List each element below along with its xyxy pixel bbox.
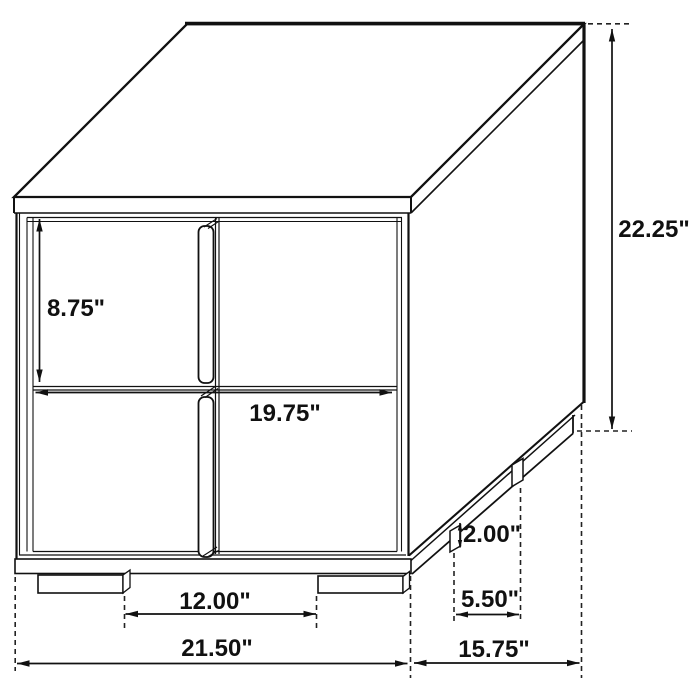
top-panel <box>14 24 585 403</box>
side-panel <box>409 213 584 574</box>
side-leg-spacing-label: 5.50" <box>461 586 519 613</box>
nightstand-dimension-diagram: 8.75" 19.75" 22.25" 2.00" 5.50" 12.00" 2… <box>0 0 700 700</box>
leg-height-label: 2.00" <box>463 521 521 548</box>
lower-drawer-handle <box>199 397 214 557</box>
upper-drawer-handle <box>199 226 214 383</box>
plinth <box>15 559 411 574</box>
front-leg-spacing-label: 12.00" <box>179 588 250 615</box>
overall-width-label: 21.50" <box>181 635 252 662</box>
overall-height-label: 22.25" <box>618 216 689 243</box>
diagram-canvas: 8.75" 19.75" 22.25" 2.00" 5.50" 12.00" 2… <box>0 0 700 700</box>
dimension-lines <box>17 29 615 667</box>
drawer-height-label: 8.75" <box>47 295 105 322</box>
drawer-width-label: 19.75" <box>249 400 320 427</box>
front-right-foot <box>318 572 410 594</box>
overall-depth-label: 15.75" <box>458 636 529 663</box>
dimension-labels: 8.75" 19.75" 22.25" 2.00" 5.50" 12.00" 2… <box>47 216 690 663</box>
